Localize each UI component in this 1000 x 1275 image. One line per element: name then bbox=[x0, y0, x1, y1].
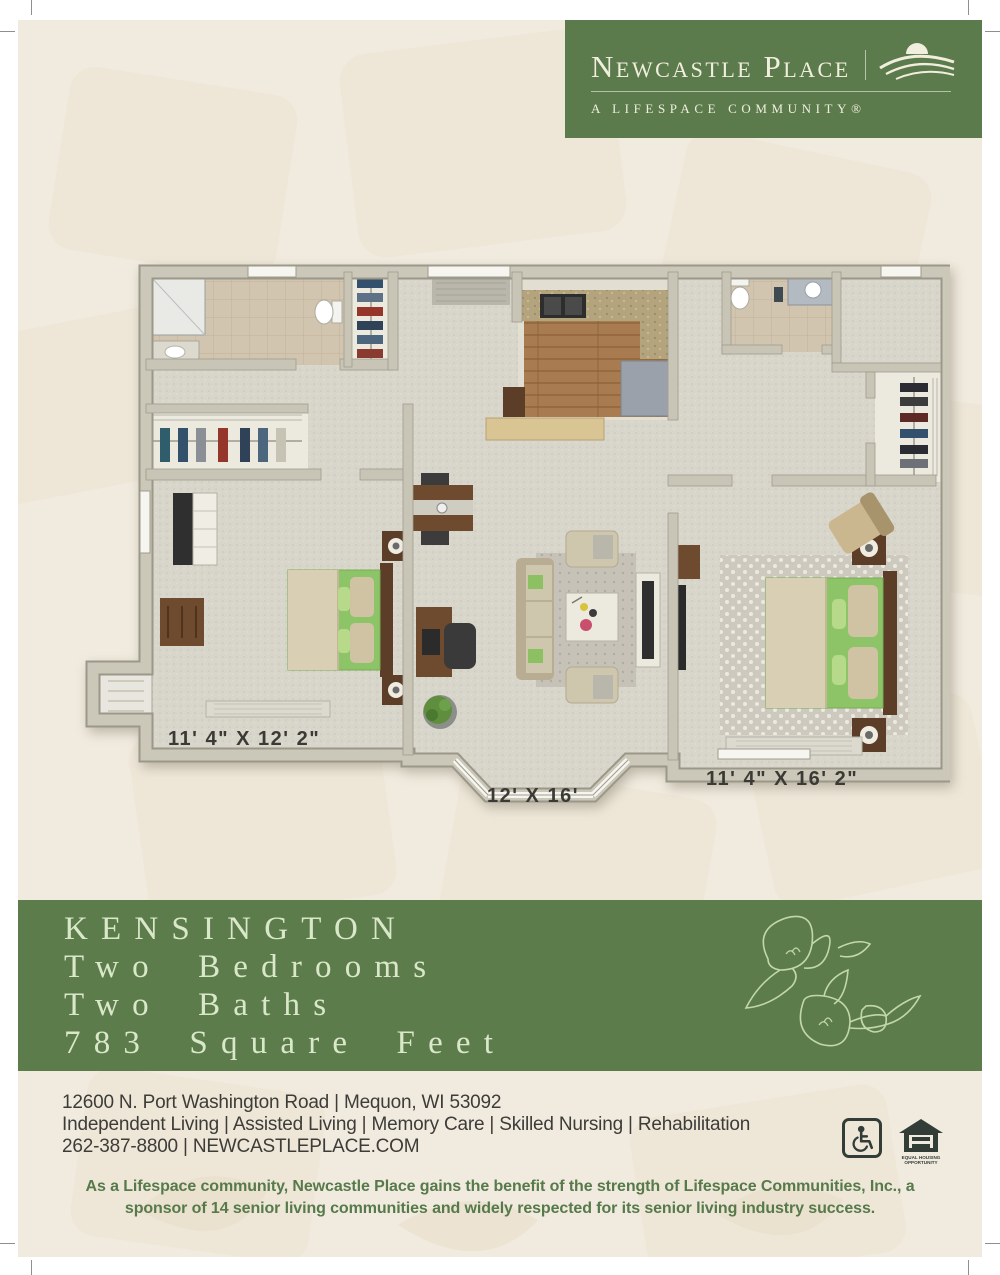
plant bbox=[423, 695, 457, 729]
services-line: Independent Living | Assisted Living | M… bbox=[62, 1114, 750, 1136]
brand-name: Newcastle Place bbox=[591, 51, 851, 82]
footer-icons: EQUAL HOUSING OPPORTUNITY bbox=[842, 1118, 944, 1171]
crop-mark bbox=[968, 0, 969, 15]
coffee-table bbox=[566, 593, 618, 641]
plan-baths: Two Baths bbox=[64, 986, 506, 1024]
brand-divider bbox=[865, 50, 866, 80]
wheelchair-accessible-icon bbox=[842, 1118, 882, 1158]
plan-square-feet: 783 Square Feet bbox=[64, 1024, 506, 1062]
closet-2 bbox=[875, 372, 941, 482]
flyer-page: Newcastle Place A LIFESPACE COMMUNITY® bbox=[18, 20, 982, 1257]
tv-console bbox=[636, 573, 660, 667]
brand-rule bbox=[591, 91, 951, 92]
armchair bbox=[566, 667, 618, 703]
hills-sun-logo-icon bbox=[878, 38, 956, 82]
plan-name: KENSINGTON bbox=[64, 910, 506, 948]
brand-tagline: A LIFESPACE COMMUNITY® bbox=[591, 101, 959, 117]
crop-mark bbox=[31, 0, 32, 15]
svg-text:OPPORTUNITY: OPPORTUNITY bbox=[904, 1160, 937, 1165]
crop-mark bbox=[985, 1243, 1000, 1244]
bed bbox=[766, 571, 897, 715]
dresser bbox=[676, 545, 700, 579]
bed bbox=[288, 563, 393, 677]
closet-1 bbox=[348, 272, 393, 365]
phone-website-line: 262-387-8800 | NEWCASTLEPLACE.COM bbox=[62, 1136, 750, 1158]
bathroom-2 bbox=[728, 272, 838, 352]
sofa bbox=[516, 558, 554, 680]
brand-banner: Newcastle Place A LIFESPACE COMMUNITY® bbox=[565, 20, 982, 138]
contact-block: 12600 N. Port Washington Road | Mequon, … bbox=[62, 1092, 750, 1158]
bathroom-1 bbox=[146, 272, 348, 365]
walk-in-closet bbox=[146, 410, 308, 475]
floor-plan bbox=[70, 263, 950, 853]
disclaimer-line-1: As a Lifespace community, Newcastle Plac… bbox=[18, 1176, 982, 1198]
dresser bbox=[173, 493, 217, 565]
disclaimer-line-2: sponsor of 14 senior living communities … bbox=[18, 1198, 982, 1220]
address-line: 12600 N. Port Washington Road | Mequon, … bbox=[62, 1092, 750, 1114]
equal-housing-icon: EQUAL HOUSING OPPORTUNITY bbox=[898, 1118, 944, 1171]
dimension-bedroom-2: 11' 4" X 16' 2" bbox=[706, 768, 858, 791]
disclaimer: As a Lifespace community, Newcastle Plac… bbox=[18, 1176, 982, 1220]
floor-plan-rendering bbox=[70, 263, 950, 853]
flower-line-art bbox=[708, 904, 958, 1067]
crop-mark bbox=[31, 1260, 32, 1275]
entry bbox=[432, 279, 510, 305]
dimension-living-room: 12' X 16' bbox=[487, 785, 579, 808]
crop-mark bbox=[985, 31, 1000, 32]
crop-mark bbox=[968, 1260, 969, 1275]
crop-mark bbox=[0, 31, 15, 32]
armchair bbox=[566, 531, 618, 567]
plan-bedrooms: Two Bedrooms bbox=[64, 948, 506, 986]
plan-name-banner: KENSINGTON Two Bedrooms Two Baths 783 Sq… bbox=[18, 900, 982, 1071]
crop-mark bbox=[0, 1243, 15, 1244]
dimension-bedroom-1: 11' 4" X 12' 2" bbox=[168, 728, 320, 751]
